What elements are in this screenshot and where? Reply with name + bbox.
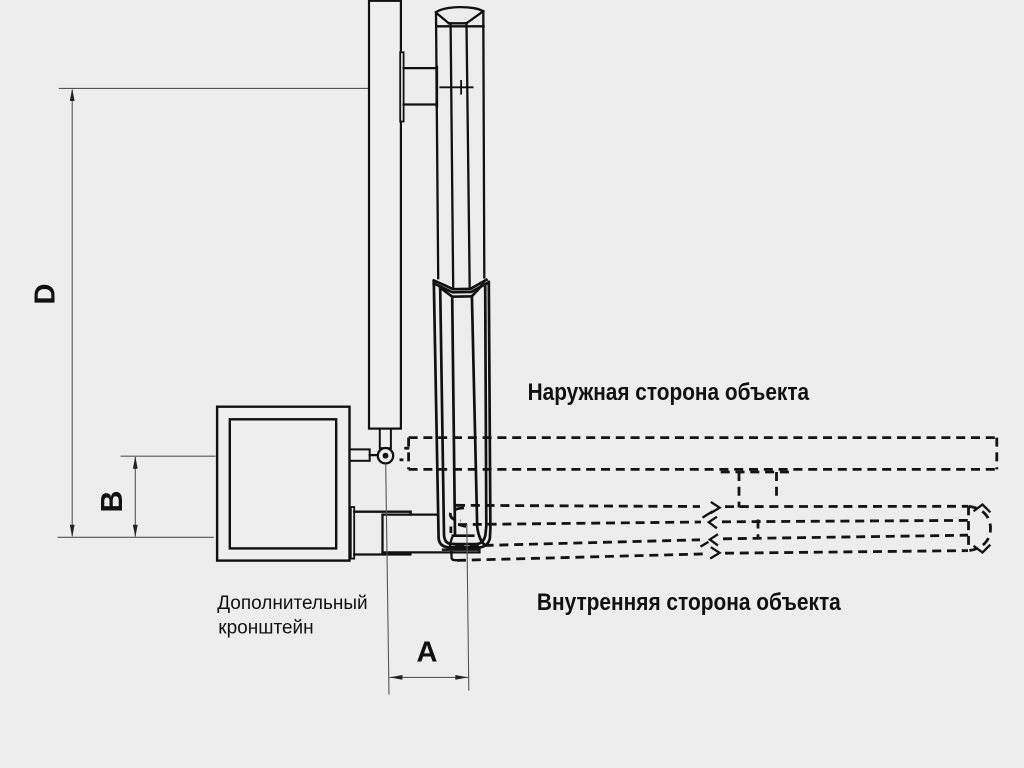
svg-text:A: A xyxy=(417,637,438,669)
svg-text:кронштейн: кронштейн xyxy=(218,618,313,639)
svg-text:Наружная сторона объекта: Наружная сторона объекта xyxy=(528,379,810,406)
svg-text:Дополнительный: Дополнительный xyxy=(217,593,367,614)
svg-text:Внутренняя сторона объекта: Внутренняя сторона объекта xyxy=(537,589,841,616)
svg-text:D: D xyxy=(29,284,61,305)
svg-text:B: B xyxy=(95,490,129,512)
